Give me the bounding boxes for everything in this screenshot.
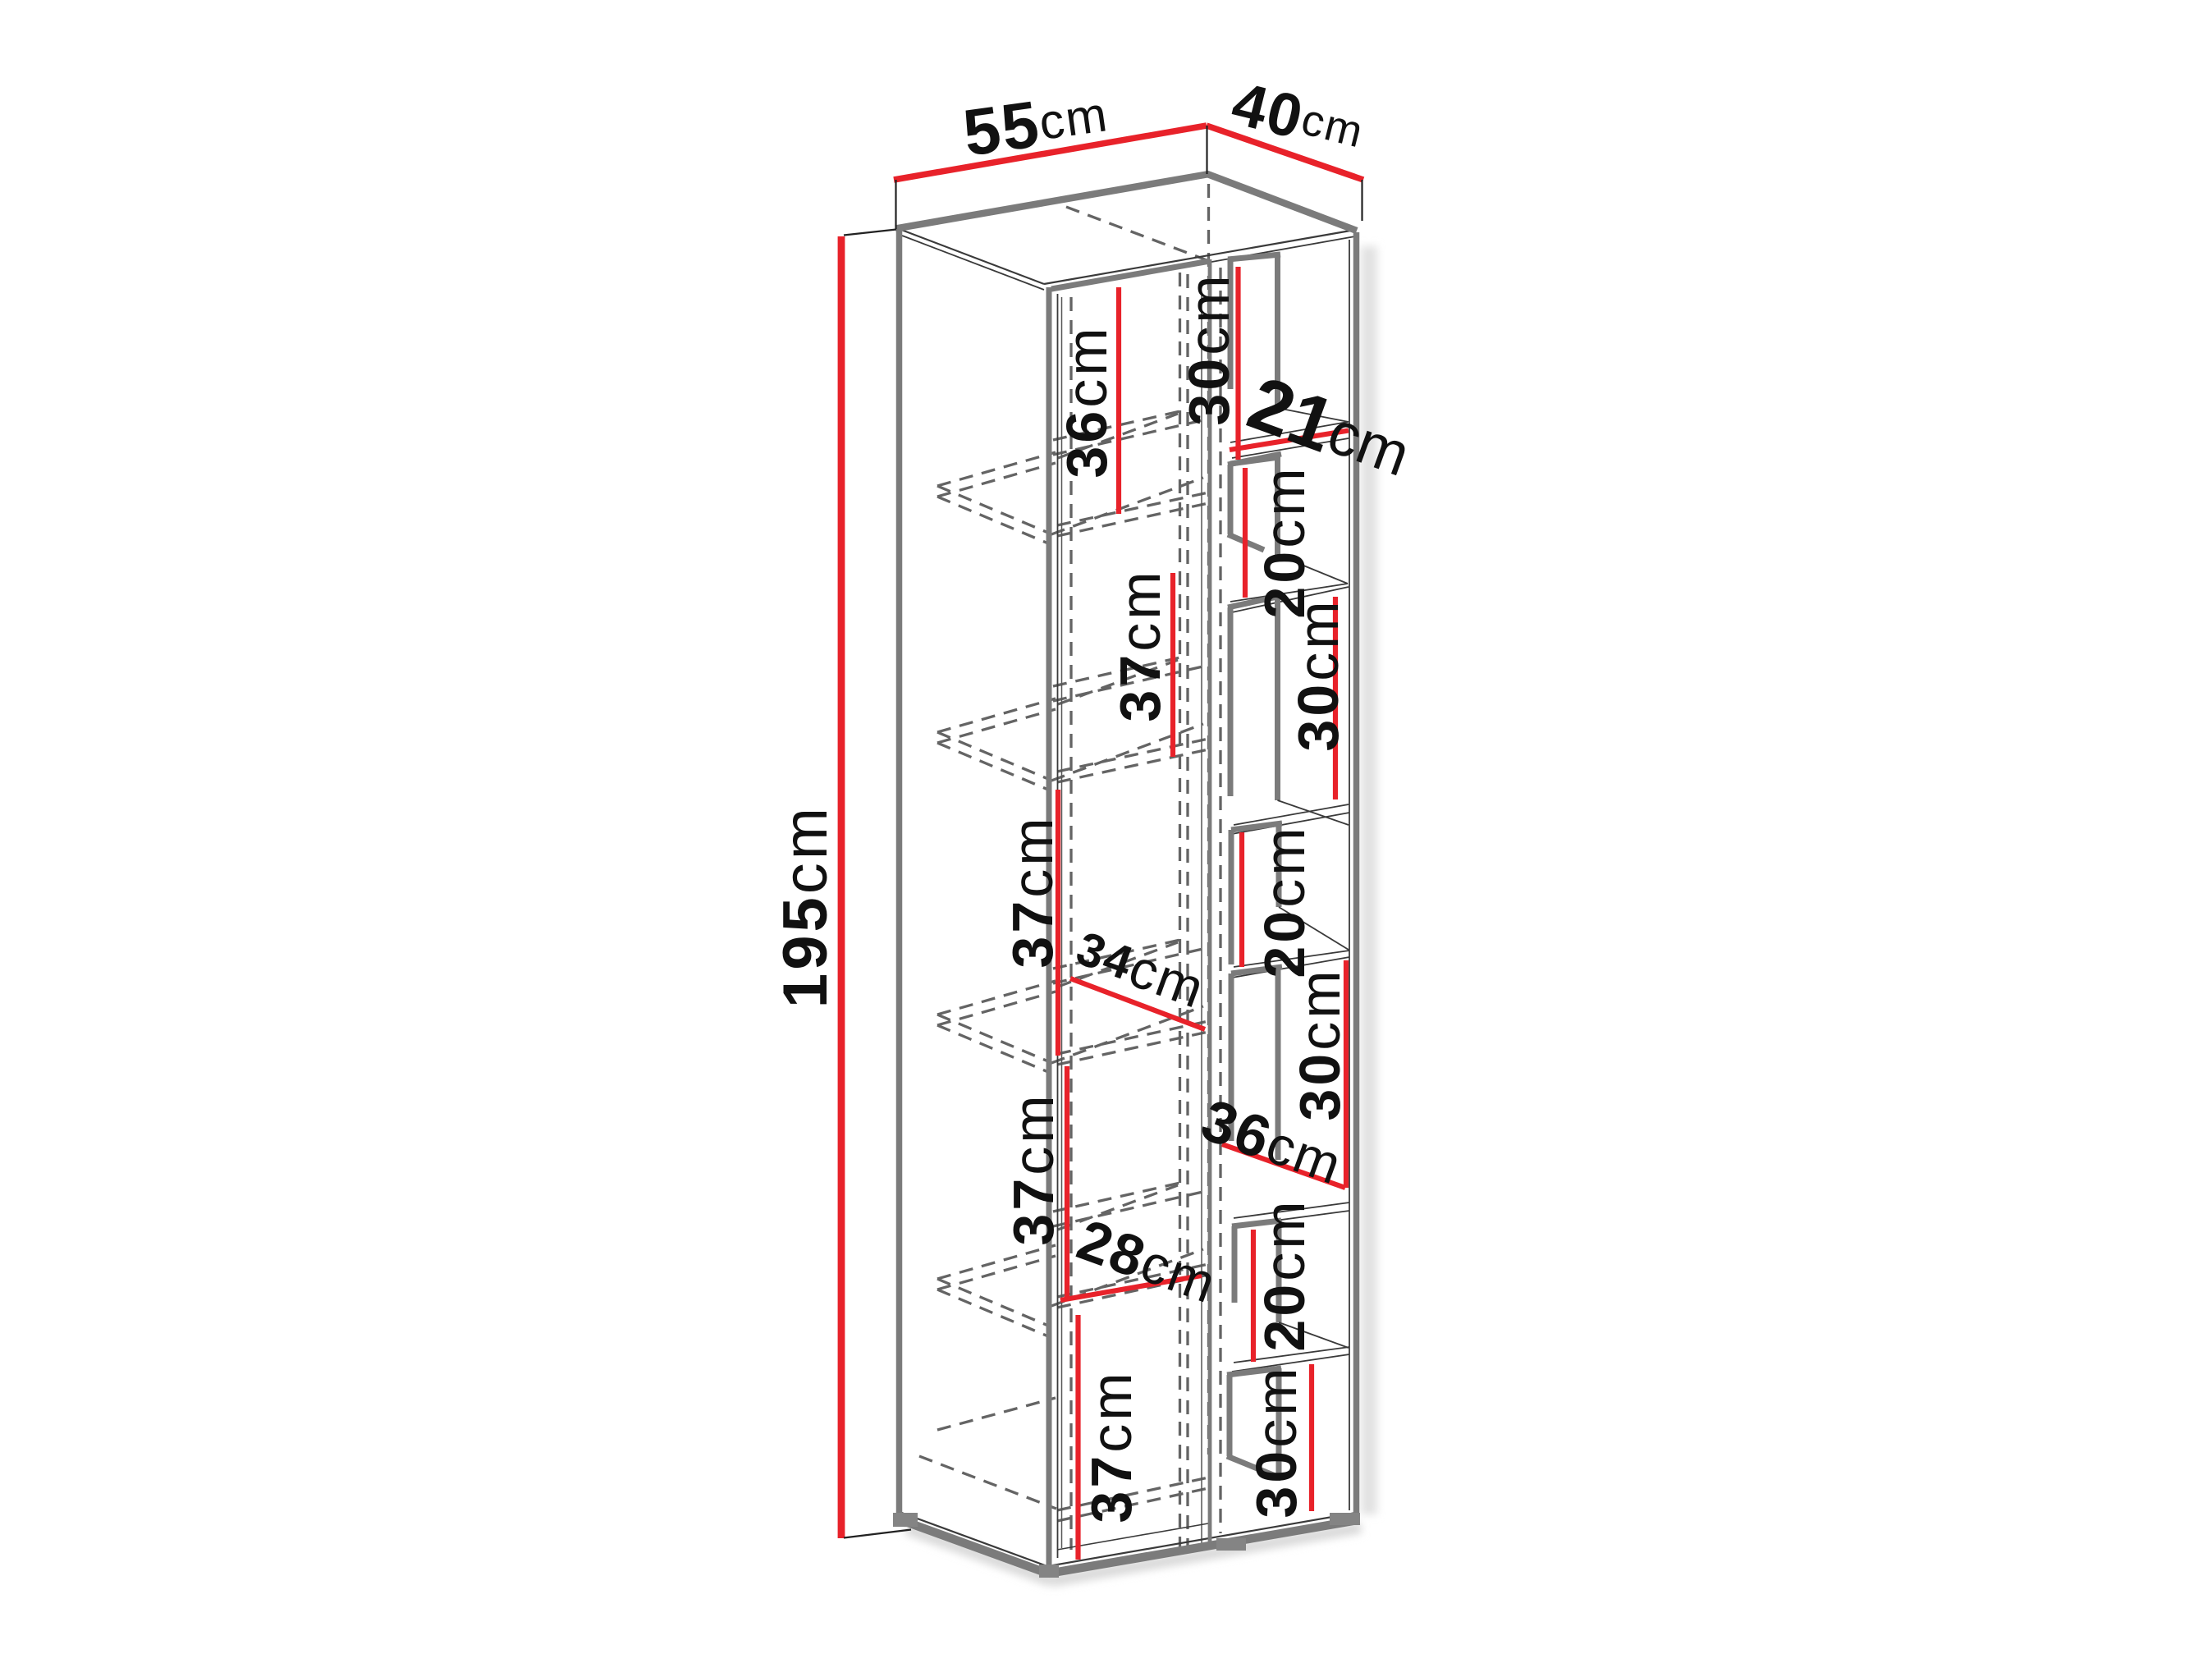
- svg-text:30cm: 30cm: [1288, 967, 1352, 1120]
- svg-text:30cm: 30cm: [1286, 598, 1350, 751]
- svg-text:37cm: 37cm: [1001, 814, 1065, 968]
- svg-text:30cm: 30cm: [1177, 272, 1241, 425]
- svg-text:37cm: 37cm: [1079, 1369, 1143, 1523]
- svg-text:195cm: 195cm: [771, 804, 840, 1008]
- svg-text:20cm: 20cm: [1253, 824, 1317, 978]
- svg-text:37cm: 37cm: [1001, 1092, 1065, 1245]
- svg-text:20cm: 20cm: [1253, 1198, 1317, 1351]
- svg-text:36cm: 36cm: [1055, 324, 1119, 478]
- svg-text:37cm: 37cm: [1108, 568, 1172, 722]
- svg-text:30cm: 30cm: [1244, 1364, 1308, 1518]
- svg-text:20cm: 20cm: [1253, 465, 1317, 618]
